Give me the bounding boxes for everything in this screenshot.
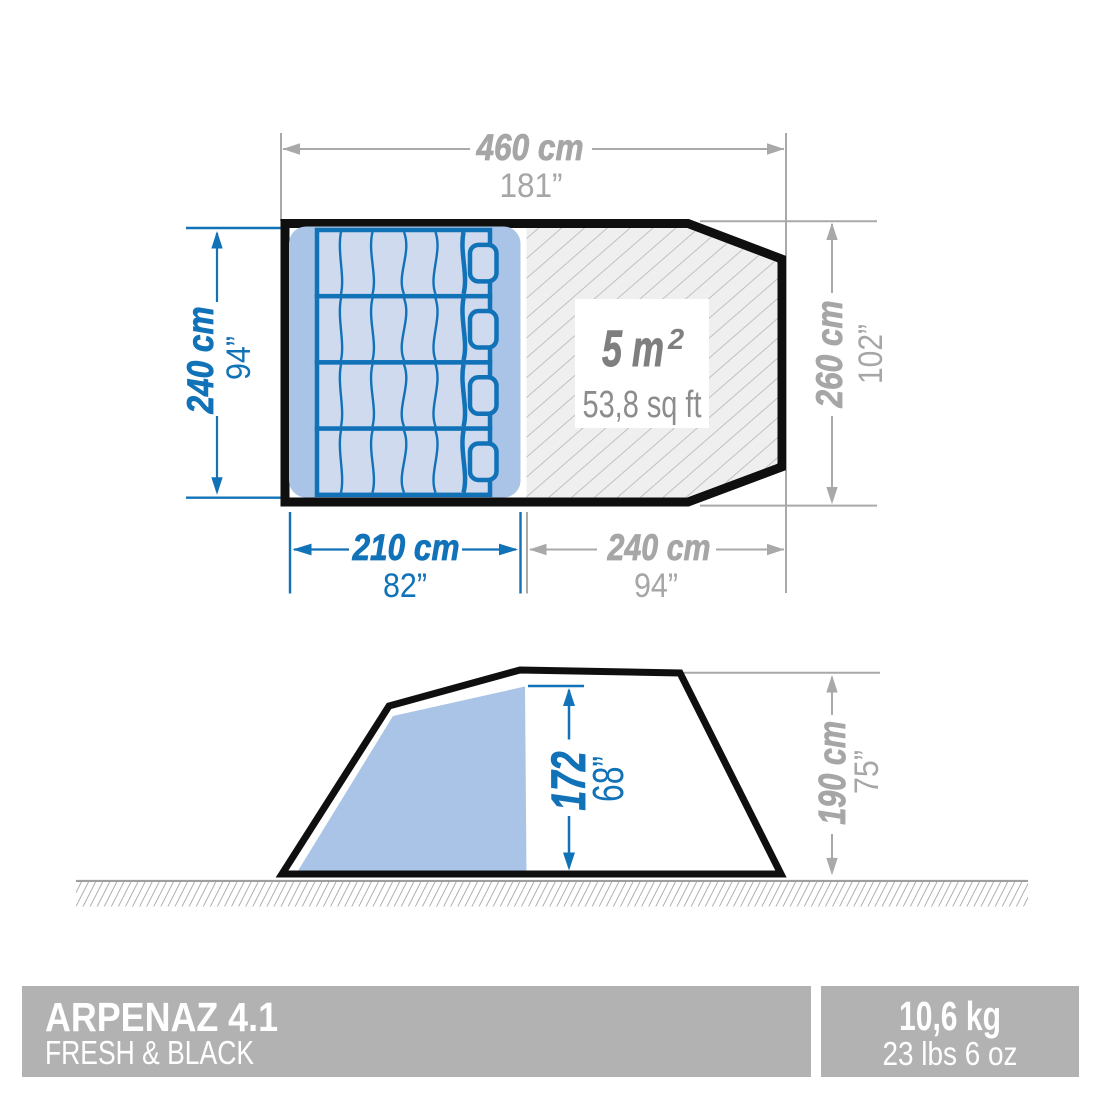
svg-text:FRESH & BLACK: FRESH & BLACK: [45, 1034, 254, 1071]
svg-text:23 lbs 6 oz: 23 lbs 6 oz: [883, 1035, 1018, 1072]
svg-text:240 cm: 240 cm: [180, 307, 221, 415]
svg-text:260 cm: 260 cm: [809, 301, 850, 409]
svg-text:53,8 sq ft: 53,8 sq ft: [583, 384, 702, 426]
svg-text:10,6 kg: 10,6 kg: [899, 993, 1001, 1039]
svg-text:240 cm: 240 cm: [607, 527, 711, 568]
svg-text:460 cm: 460 cm: [476, 127, 584, 168]
svg-text:210 cm: 210 cm: [352, 527, 460, 568]
svg-text:82”: 82”: [383, 567, 427, 605]
svg-text:102”: 102”: [852, 324, 890, 384]
svg-text:2: 2: [667, 324, 684, 356]
svg-text:181”: 181”: [500, 167, 563, 205]
svg-text:5 m: 5 m: [602, 320, 664, 377]
svg-text:94”: 94”: [634, 567, 678, 605]
svg-text:68”: 68”: [584, 756, 633, 802]
svg-text:94”: 94”: [220, 336, 258, 380]
svg-text:75”: 75”: [848, 750, 886, 794]
